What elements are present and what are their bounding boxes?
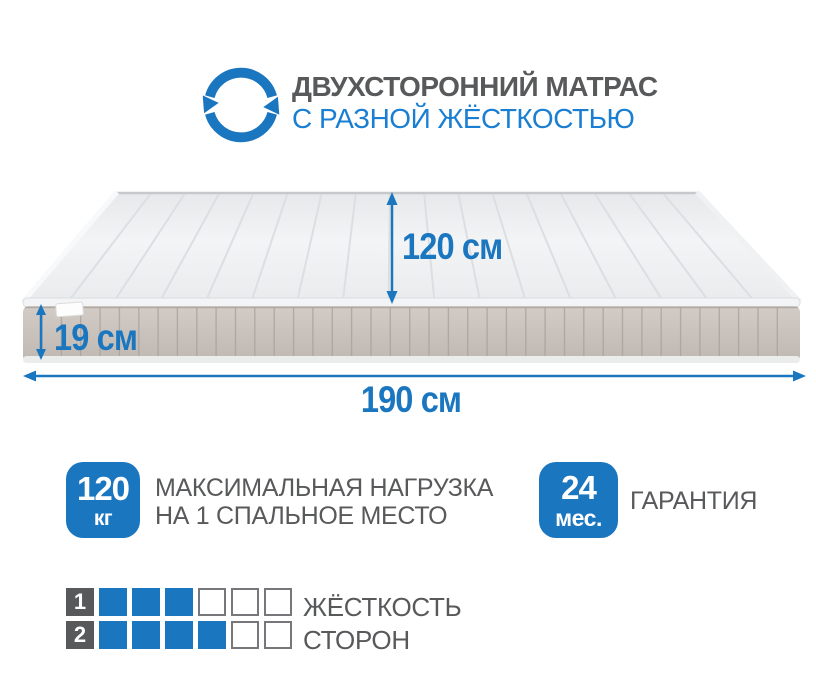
warranty-badge: 24 мес.	[539, 462, 618, 538]
firmness-row-number: 1	[66, 588, 94, 616]
firmness-empty-square	[231, 621, 259, 649]
product-subtitle: С РАЗНОЙ ЖЁСТКОСТЬЮ	[292, 103, 634, 135]
mattress-label-tag	[56, 302, 84, 317]
firmness-empty-square	[231, 588, 259, 616]
max-load-description: МАКСИМАЛЬНАЯ НАГРУЗКА НА 1 СПАЛЬНОЕ МЕСТ…	[155, 474, 493, 530]
height-dimension-label: 19 см	[54, 319, 137, 356]
firmness-filled-square	[132, 588, 160, 616]
max-load-description-line1: МАКСИМАЛЬНАЯ НАГРУЗКА	[155, 474, 493, 502]
firmness-filled-square	[99, 621, 127, 649]
mattress-side-band	[23, 306, 800, 362]
firmness-empty-square	[264, 588, 292, 616]
mattress-front-piping	[23, 298, 800, 307]
max-load-unit: кг	[94, 508, 112, 529]
product-title: ДВУХСТОРОННИЙ МАТРАС	[292, 71, 658, 103]
length-arrowhead-right	[793, 371, 806, 382]
warranty-value: 24	[561, 471, 596, 504]
width-dimension-label: 120 см	[402, 228, 502, 265]
firmness-filled-square	[165, 588, 193, 616]
firmness-caption-line1: ЖЁСТКОСТЬ	[303, 592, 461, 623]
firmness-filled-square	[198, 621, 226, 649]
max-load-badge: 120 кг	[66, 462, 140, 538]
mattress-bottom-piping	[23, 356, 800, 363]
warranty-unit: мес.	[555, 507, 602, 530]
warranty-description: ГАРАНТИЯ	[630, 487, 757, 515]
max-load-description-line2: НА 1 СПАЛЬНОЕ МЕСТО	[155, 502, 493, 530]
firmness-filled-square	[165, 621, 193, 649]
firmness-row-2: 2	[66, 621, 292, 649]
firmness-empty-square	[198, 588, 226, 616]
firmness-empty-square	[264, 621, 292, 649]
firmness-row-1: 1	[66, 588, 292, 616]
firmness-filled-square	[132, 621, 160, 649]
infographic-canvas: ДВУХСТОРОННИЙ МАТРАС С РАЗНОЙ ЖЁСТКОСТЬЮ…	[0, 0, 816, 700]
firmness-filled-square	[99, 588, 127, 616]
firmness-caption-line2: СТОРОН	[303, 625, 410, 656]
max-load-value: 120	[77, 472, 129, 505]
rotate-arrows-icon	[197, 60, 285, 150]
length-arrowhead-left	[23, 371, 36, 382]
firmness-row-number: 2	[66, 621, 94, 649]
length-dimension-label: 190 см	[314, 381, 508, 418]
